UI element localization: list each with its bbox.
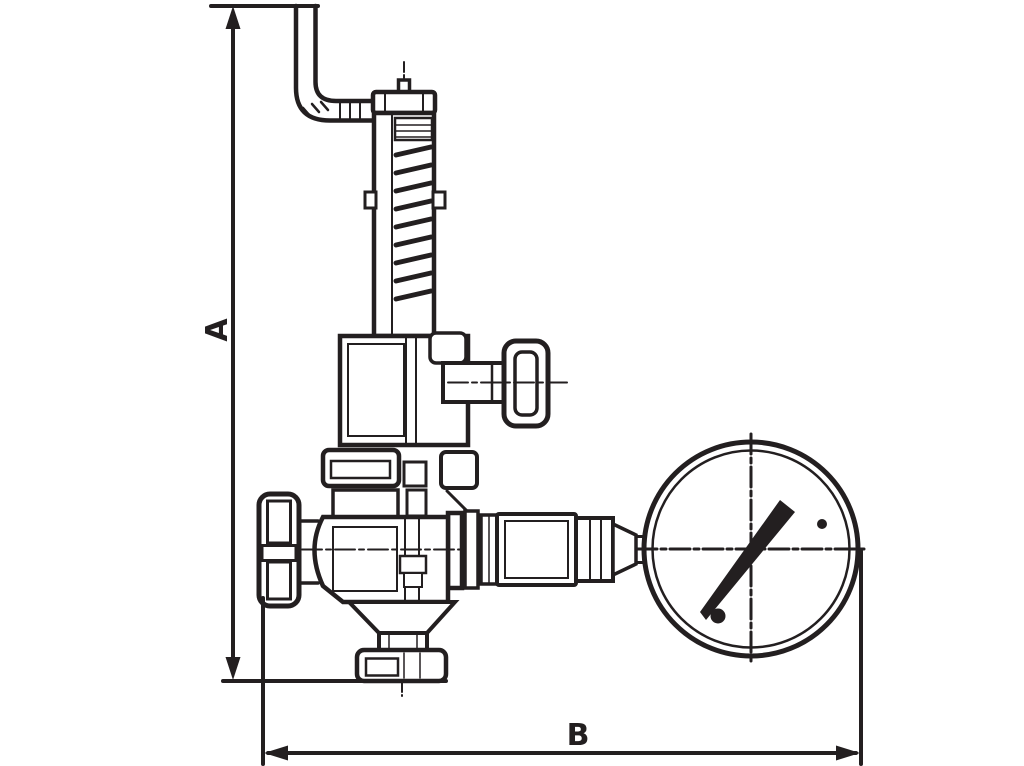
bonnet-flange bbox=[323, 450, 477, 521]
vent-pipe-elbow bbox=[296, 6, 376, 121]
gauge-scale-dot bbox=[817, 519, 827, 529]
vent-pipe-outer-wall bbox=[296, 6, 376, 121]
seat-block bbox=[400, 556, 426, 573]
flange-left bbox=[323, 450, 399, 486]
outlet-neck bbox=[349, 602, 455, 652]
body-shell bbox=[315, 517, 449, 602]
housing-collar-left bbox=[365, 192, 376, 208]
dim-a-label: A bbox=[200, 318, 235, 342]
dim-a-arrow-up bbox=[226, 6, 241, 29]
dim-b-arrow-left bbox=[264, 746, 288, 761]
outlet-cone bbox=[349, 602, 455, 633]
pipe-coupling bbox=[497, 514, 576, 585]
gauge-pivot-dot bbox=[711, 609, 726, 624]
handwheel-hub bbox=[262, 546, 296, 561]
spring-housing bbox=[365, 113, 445, 336]
handwheel-rim-upper bbox=[268, 501, 291, 543]
handwheel-rim-lower bbox=[268, 562, 291, 599]
outlet-flange bbox=[357, 650, 446, 681]
neck-tier bbox=[333, 490, 398, 517]
spindle-block-lower bbox=[407, 490, 426, 516]
technical-drawing-canvas: A B bbox=[0, 0, 1024, 766]
spindle-block-upper bbox=[404, 462, 426, 486]
dim-b-label: B bbox=[567, 718, 590, 753]
flange-right bbox=[441, 452, 477, 488]
cap-body bbox=[373, 92, 435, 113]
bonnet-boss bbox=[430, 333, 466, 363]
vent-pipe-thread-ticks bbox=[340, 103, 360, 119]
adjusting-cap bbox=[373, 80, 435, 113]
adjusting-screw-threads bbox=[395, 118, 432, 140]
gauge-piping bbox=[465, 511, 654, 588]
pipe-reducer bbox=[613, 524, 636, 575]
outlet-flange-plate bbox=[465, 511, 478, 588]
vent-pipe-bend-hatch bbox=[303, 102, 328, 116]
housing-collar-right bbox=[433, 192, 445, 208]
pipe-nut-2 bbox=[576, 518, 613, 581]
seat-block-lower bbox=[404, 573, 422, 587]
dim-a-arrow-down bbox=[226, 657, 241, 680]
dim-b-arrow-right bbox=[836, 746, 860, 761]
vent-pipe-inner-wall bbox=[316, 6, 377, 101]
pressure-gauge bbox=[637, 434, 868, 664]
safety-valve-dimension-drawing: A B bbox=[0, 0, 1024, 766]
